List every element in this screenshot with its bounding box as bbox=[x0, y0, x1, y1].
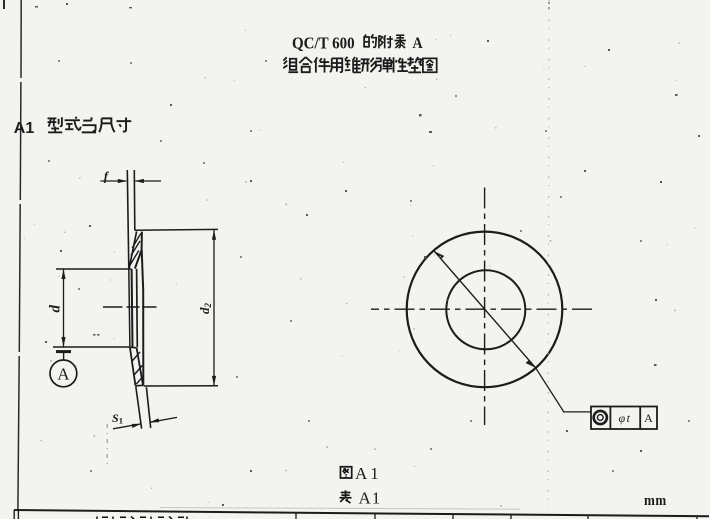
svg-text:A1: A1 bbox=[355, 464, 379, 483]
svg-text:QC/T 600: QC/T 600 bbox=[292, 35, 355, 53]
svg-text:d: d bbox=[48, 305, 64, 313]
svg-text:mm: mm bbox=[644, 493, 667, 509]
svg-text:A: A bbox=[57, 365, 70, 384]
svg-text:A1: A1 bbox=[14, 120, 35, 137]
svg-text:A: A bbox=[413, 36, 423, 53]
svg-text:A: A bbox=[644, 411, 653, 425]
svg-text:A1: A1 bbox=[359, 489, 381, 508]
svg-text:φt: φt bbox=[619, 411, 631, 425]
